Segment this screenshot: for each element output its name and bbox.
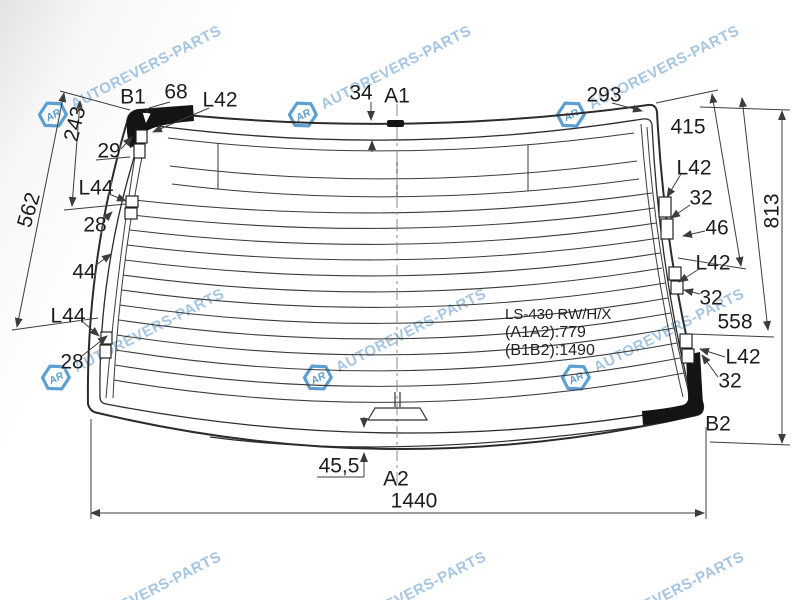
connector-label-l42-right3: L42 — [725, 347, 760, 368]
connector-label-l42-top-left: L42 — [202, 90, 237, 111]
part-info-block: LS-430 RW/H/X (A1A2):779 (B1B2):1490 — [505, 306, 611, 360]
dim-45-5: 45,5 — [319, 456, 360, 477]
point-label-b2: B2 — [705, 414, 731, 435]
dim-813: 813 — [762, 193, 783, 228]
connector-label-l44-lower: L44 — [50, 306, 85, 327]
dim-34: 34 — [349, 83, 372, 104]
point-label-a1: A1 — [384, 86, 410, 107]
point-label-b1: B1 — [120, 87, 146, 108]
dim-32-right1: 32 — [689, 188, 712, 209]
dim-44: 44 — [72, 262, 95, 283]
dim-558: 558 — [717, 312, 752, 333]
part-b-span: (B1B2):1490 — [505, 342, 611, 360]
point-label-a2: A2 — [383, 469, 409, 490]
rear-window-diagram-page: AR AUTOREVERS-PARTS AR AUTOREVERS-PARTS … — [0, 0, 800, 600]
dim-1440: 1440 — [391, 491, 438, 512]
dim-28-upper: 28 — [83, 215, 106, 236]
a1-center-mark — [387, 120, 404, 127]
dim-32-right3: 32 — [718, 371, 741, 392]
dim-68: 68 — [164, 82, 187, 103]
connector-label-l42-right2: L42 — [695, 253, 730, 274]
connector-label-l42-right1: L42 — [676, 158, 711, 179]
antenna-band — [168, 133, 639, 197]
dim-28-lower: 28 — [60, 352, 83, 373]
part-model: LS-430 RW/H/X — [505, 306, 611, 324]
dim-415: 415 — [670, 117, 705, 138]
part-a-span: (A1A2):779 — [505, 324, 611, 342]
dim-46: 46 — [705, 218, 728, 239]
dim-32-right2: 32 — [699, 288, 722, 309]
dimension-lines — [12, 90, 790, 519]
dim-29: 29 — [97, 141, 120, 162]
dim-293: 293 — [586, 85, 621, 106]
defroster-lines — [114, 193, 684, 402]
connector-label-l44-upper: L44 — [78, 178, 113, 199]
